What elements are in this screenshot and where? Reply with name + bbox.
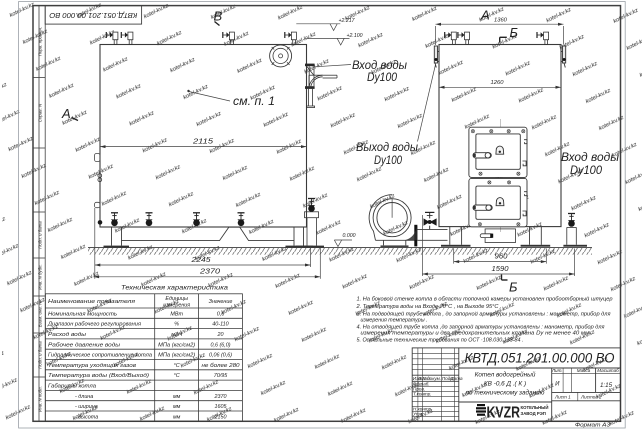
svg-text:1260: 1260: [491, 80, 505, 86]
svg-text:40-110: 40-110: [212, 322, 228, 328]
svg-text:мм: мм: [173, 414, 181, 420]
svg-text:2370: 2370: [214, 394, 227, 400]
svg-text:мм: мм: [173, 394, 181, 400]
svg-text:КОТЕЛЬНЫЙ: КОТЕЛЬНЫЙ: [521, 405, 549, 410]
svg-text:2. Температура воды на Входе: 2. Температура воды на Входе 70°С , на В…: [356, 304, 502, 310]
svg-text:не более 280: не более 280: [202, 363, 240, 369]
svg-text:Температура воды (Вход/Выход): Температура воды (Вход/Выход): [48, 373, 149, 379]
svg-text:по техническому заданию: по техническому заданию: [466, 389, 545, 397]
svg-text:Перв. примен.: Перв. примен.: [38, 27, 43, 56]
svg-text:2115: 2115: [192, 138, 213, 145]
svg-text:1605: 1605: [215, 404, 228, 410]
svg-text:Листов 2: Листов 2: [580, 395, 602, 400]
svg-text:А: А: [61, 106, 71, 121]
svg-text:Взам. инв. N: Взам. инв. N: [38, 301, 43, 327]
svg-text:Вход воды: Вход воды: [352, 60, 408, 72]
svg-text:20: 20: [217, 332, 224, 338]
svg-text:м3/ч: м3/ч: [171, 332, 182, 338]
svg-text:Диапазон рабочего регулировани: Диапазон рабочего регулирования: [47, 322, 141, 328]
svg-text:Котел водогрейный: Котел водогрейный: [475, 370, 536, 378]
svg-text:измерения: измерения: [163, 302, 190, 308]
svg-text:КВ -0,6 Д .( К ): КВ -0,6 Д .( К ): [484, 380, 526, 387]
svg-text:960: 960: [495, 253, 508, 260]
svg-text:+2.100: +2.100: [347, 33, 363, 39]
svg-text:МПа (кгс/см2): МПа (кгс/см2): [158, 353, 195, 359]
svg-text:Инв. N подл.: Инв. N подл.: [38, 386, 43, 412]
svg-text:N докум.: N докум.: [423, 376, 442, 381]
svg-text:- ширина: - ширина: [75, 404, 98, 410]
svg-text:Подп. и дата: Подп. и дата: [38, 341, 43, 369]
svg-text:1. На боковой стенке котла в: 1. На боковой стенке котла в области топ…: [357, 295, 614, 302]
svg-text:КВТД.051.201.00.000 ВО: КВТД.051.201.00.000 ВО: [465, 351, 615, 366]
svg-text:Наименование показателя: Наименование показателя: [48, 299, 135, 305]
svg-text:1360: 1360: [494, 18, 508, 24]
svg-text:Расход воды: Расход воды: [48, 332, 86, 338]
svg-text:2245: 2245: [190, 257, 210, 264]
svg-text:- длина: - длина: [75, 394, 93, 400]
svg-text:Dy100: Dy100: [374, 155, 403, 167]
svg-text:%: %: [174, 322, 179, 328]
svg-text:Единицы: Единицы: [165, 296, 188, 302]
svg-text:1:15: 1:15: [600, 382, 613, 389]
svg-text:°С: °С: [174, 373, 180, 379]
svg-text:Б: Б: [509, 280, 518, 295]
svg-text:1590: 1590: [492, 266, 509, 273]
svg-text:Рабочее давление воды: Рабочее давление воды: [48, 342, 120, 348]
svg-text:Габариты котла: Габариты котла: [48, 384, 96, 390]
svg-text:А: А: [480, 8, 490, 23]
svg-text:+2.217: +2.217: [339, 18, 356, 24]
svg-text:Техническая характеристика: Техническая характеристика: [121, 285, 228, 292]
svg-text:Dy100: Dy100: [570, 165, 603, 177]
svg-text:Лист 1: Лист 1: [554, 395, 571, 400]
svg-text:5. Остальные технические треб: 5. Остальные технические требования по О…: [357, 338, 524, 344]
svg-text:МПа (кгс/см2): МПа (кгс/см2): [158, 342, 195, 348]
svg-text:Подп. и дата: Подп. и дата: [38, 221, 43, 249]
svg-text:Дата: Дата: [449, 376, 463, 381]
svg-text:КВТД.051.201.00.000 ВО: КВТД.051.201.00.000 ВО: [49, 11, 137, 20]
svg-text:°С: °С: [174, 363, 180, 369]
svg-text:70/95: 70/95: [214, 373, 228, 379]
svg-text:Температура уходящих газов: Температура уходящих газов: [48, 363, 136, 369]
svg-text:Выход воды: Выход воды: [356, 142, 419, 154]
svg-text:ЗАВОД РЭП: ЗАВОД РЭП: [521, 411, 546, 416]
svg-text:Т.контр.: Т.контр.: [413, 391, 432, 396]
svg-text:Гидравлическое сопротивление к: Гидравлическое сопротивление котла: [48, 353, 152, 359]
svg-text:Утв.: Утв.: [413, 411, 423, 416]
svg-text:0,6 (6,0): 0,6 (6,0): [210, 342, 230, 348]
svg-text:Формат А3: Формат А3: [575, 423, 611, 429]
svg-text:измерения температуры и два: измерения температуры и два предохраните…: [361, 330, 593, 336]
svg-text:МВт: МВт: [170, 311, 183, 317]
svg-text:мм: мм: [173, 404, 181, 410]
svg-text:Масса: Масса: [577, 368, 591, 373]
svg-text:- высота: - высота: [75, 414, 98, 420]
svg-text:0.000: 0.000: [343, 233, 356, 239]
svg-text:Значение: Значение: [209, 299, 233, 305]
svg-text:измерения температуры .: измерения температуры .: [361, 317, 428, 323]
svg-text:Б: Б: [510, 25, 519, 40]
svg-text:0,6: 0,6: [217, 311, 225, 317]
svg-text:KVZR: KVZR: [487, 405, 521, 422]
svg-text:Лит.: Лит.: [551, 368, 563, 373]
svg-text:2150: 2150: [214, 414, 227, 420]
svg-text:Dy100: Dy100: [367, 72, 398, 84]
svg-text:см. п. 1: см. п. 1: [233, 96, 275, 108]
svg-text:Справ. N: Справ. N: [38, 103, 43, 122]
svg-text:Вход воды: Вход воды: [561, 152, 620, 164]
svg-text:2370: 2370: [199, 269, 220, 276]
svg-text:Инв. N дубл.: Инв. N дубл.: [38, 264, 43, 289]
svg-text:0,06 (0,6): 0,06 (0,6): [209, 353, 232, 359]
svg-text:Номинальная мощность: Номинальная мощность: [48, 311, 117, 317]
svg-text:Масштаб: Масштаб: [597, 368, 619, 373]
svg-text:И: И: [555, 382, 560, 388]
